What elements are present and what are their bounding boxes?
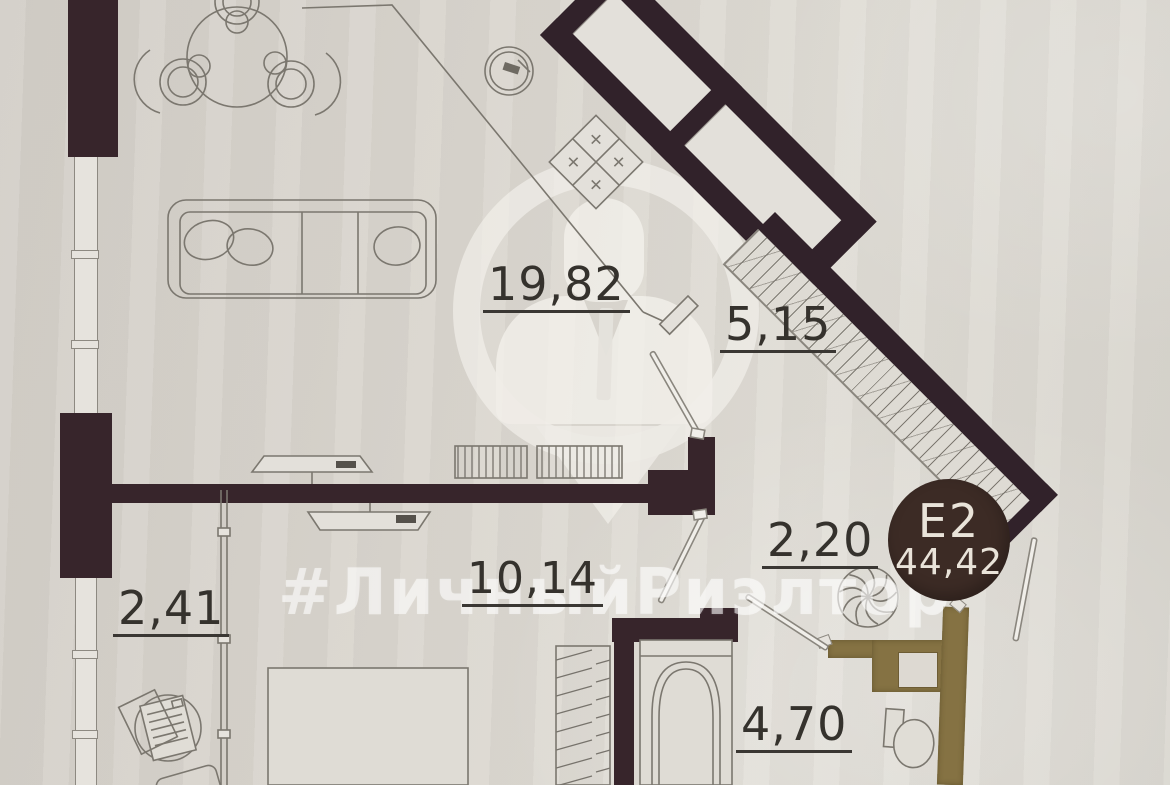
tv-icon bbox=[252, 456, 372, 484]
watermark-hashtag: #ЛичныйРиэлтор bbox=[278, 556, 1170, 630]
area-label-loggia: 5,15 bbox=[720, 300, 836, 353]
area-label-living-kitchen: 19,82 bbox=[483, 260, 630, 313]
kitchen-sink-icon bbox=[485, 47, 533, 95]
toilet-icon bbox=[882, 709, 936, 769]
floorplan-photo: #ЛичныйРиэлтор 19,82 5,15 2,20 2,41 10,1… bbox=[0, 0, 1170, 785]
bathtub-icon bbox=[640, 640, 732, 785]
area-label-balcony: 2,41 bbox=[113, 584, 229, 637]
stove-icon bbox=[549, 115, 642, 208]
area-label-hallway: 2,20 bbox=[762, 516, 878, 569]
area-label-bathroom: 4,70 bbox=[736, 700, 852, 753]
shelving-icon bbox=[455, 446, 622, 478]
unit-area-badge: E2 44,42 bbox=[888, 479, 1010, 601]
door-hinge bbox=[690, 428, 704, 439]
dining-table-icon bbox=[134, 0, 340, 115]
tv-icon bbox=[308, 503, 430, 530]
door-leaf-icon bbox=[650, 351, 701, 435]
area-label-bedroom: 10,14 bbox=[462, 556, 603, 607]
radiator-icon bbox=[119, 690, 201, 761]
sofa-icon bbox=[168, 200, 436, 298]
radiator-icon bbox=[154, 764, 226, 785]
door-hinge bbox=[693, 509, 707, 520]
lineart-layer bbox=[0, 0, 1170, 785]
unit-total-area: 44,42 bbox=[888, 544, 1010, 582]
bed-icon bbox=[268, 668, 468, 785]
unit-number: E2 bbox=[888, 498, 1010, 544]
wardrobe-icon bbox=[556, 646, 610, 785]
balcony-partition bbox=[218, 490, 230, 785]
